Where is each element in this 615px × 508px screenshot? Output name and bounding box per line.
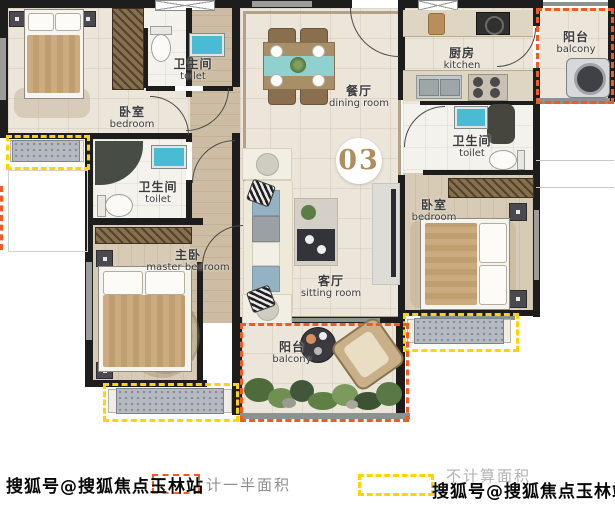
room-label-en: sitting room [288,288,374,299]
kitchen-sink-icon [416,75,462,99]
cup-icon [305,235,314,244]
room-label-en: toilet [440,148,504,159]
sofa-cushion [252,216,280,242]
room-label-en: balcony [258,354,326,365]
sink-icon [455,107,487,128]
legend-not-counted-swatch [358,474,434,496]
pillow-icon [55,13,81,31]
legend-half-area-label: 计一半面积 [206,474,291,495]
unit-number-badge: 03 [336,138,382,184]
tv-cabinet-icon [372,183,400,285]
wardrobe-icon [448,178,534,198]
room-label-zh: 卫生间 [440,132,504,149]
room-label-balcony-bottom: 阳台 balcony [258,338,326,365]
burner-icon [473,88,483,98]
sink-basin [419,79,439,96]
burner-icon [490,77,500,87]
plate-icon [270,45,283,58]
room-label-zh: 卧室 [92,103,172,120]
tray-icon [297,229,335,261]
room-label-en: balcony [546,44,606,55]
room-label-master-bedroom: 主卧 master bedroom [132,246,244,273]
stove-icon [468,74,508,101]
kitchen-counter [403,70,533,101]
room-label-en: toilet [160,71,226,82]
room-label-en: bedroom [403,212,465,223]
exterior-ledge-line [536,187,614,188]
wall [465,0,543,8]
pillow-icon [479,223,507,263]
cup-icon [317,245,326,254]
window [534,210,539,280]
pillow-icon [28,13,54,31]
pillow-icon [103,271,143,295]
sink-basin [440,79,460,96]
pillow-icon [479,265,507,305]
room-label-zh: 卧室 [403,196,465,213]
lamp-icon [256,153,279,176]
ac-outdoor-unit-box [403,313,519,352]
pillow-icon [145,271,185,295]
exterior-ledge-line [536,160,614,161]
window-icon [155,0,215,11]
door-opening [186,142,192,180]
room-label-dining: 餐厅 dining room [320,82,398,109]
room-label-zh: 厨房 [430,44,494,61]
room-label-zh: 阳台 [258,338,326,355]
watermark-bottom-left: 搜狐号@搜狐焦点玉林站 [6,472,204,497]
wall [232,8,240,87]
room-label-zh: 阳台 [546,28,606,45]
sink-icon [152,146,186,168]
window [86,262,92,340]
coffee-table-icon [294,198,338,266]
room-label-zh: 卫生间 [126,178,190,195]
room-label-en: master bedroom [132,262,244,273]
ac-outdoor-unit-box [6,135,90,170]
blanket [425,223,477,305]
bed-icon [98,266,192,372]
bed-icon [24,9,84,99]
plate-icon [270,74,283,87]
plate-icon [312,45,325,58]
ac-outdoor-unit-box [103,383,239,422]
nightstand-icon [509,203,527,221]
room-label-bedroom-right: 卧室 bedroom [403,196,465,223]
burner-icon [473,77,483,87]
blanket [27,35,80,93]
room-label-kitchen: 厨房 kitchen [430,44,494,71]
window [252,1,312,7]
side-table-icon [242,148,292,180]
watermark-bottom-right: 搜狐号@搜狐焦点玉林站 [432,477,615,502]
room-label-toilet-top: 卫生间 toilet [160,55,226,82]
wardrobe-icon [95,227,192,244]
floor-plan-image: 卧室 bedroom 卫生间 toilet 卫生间 toilet 主卧 mast… [0,0,615,508]
wall [423,170,533,175]
balcony-parapet [543,2,608,6]
bed-icon [420,218,510,310]
sink-icon [190,34,224,56]
room-label-en: dining room [320,98,398,109]
window [0,38,6,100]
room-label-bedroom-top-left: 卧室 bedroom [92,103,172,130]
cutting-board-icon [428,13,445,35]
tv-icon [391,189,396,277]
wall [93,218,203,225]
exterior-outline [8,170,88,252]
toilet-tank-icon [517,150,525,170]
burner-icon [490,88,500,98]
room-label-sitting: 客厅 sitting room [288,272,374,299]
room-label-zh: 餐厅 [320,82,398,99]
room-label-zh: 客厅 [288,272,374,289]
room-label-zh: 主卧 [132,246,244,263]
flower-centerpiece-icon [290,57,306,73]
nightstand-icon [9,11,25,27]
room-label-toilet-middle: 卫生间 toilet [126,178,190,205]
neighbor-balcony-dash [0,186,6,250]
room-label-en: bedroom [92,119,172,130]
room-label-toilet-right: 卫生间 toilet [440,132,504,159]
sofa-cushion [252,242,280,266]
room-label-balcony-top-right: 阳台 balcony [546,28,606,55]
room-label-zh: 卫生间 [160,55,226,72]
nightstand-icon [509,290,527,308]
blanket [103,295,185,367]
plant-icon [301,205,316,220]
wardrobe-icon [112,8,144,90]
room-label-en: toilet [126,194,190,205]
room-label-en: kitchen [430,60,494,71]
nightstand-icon [96,250,113,267]
balcony-half-area-box [536,8,614,104]
